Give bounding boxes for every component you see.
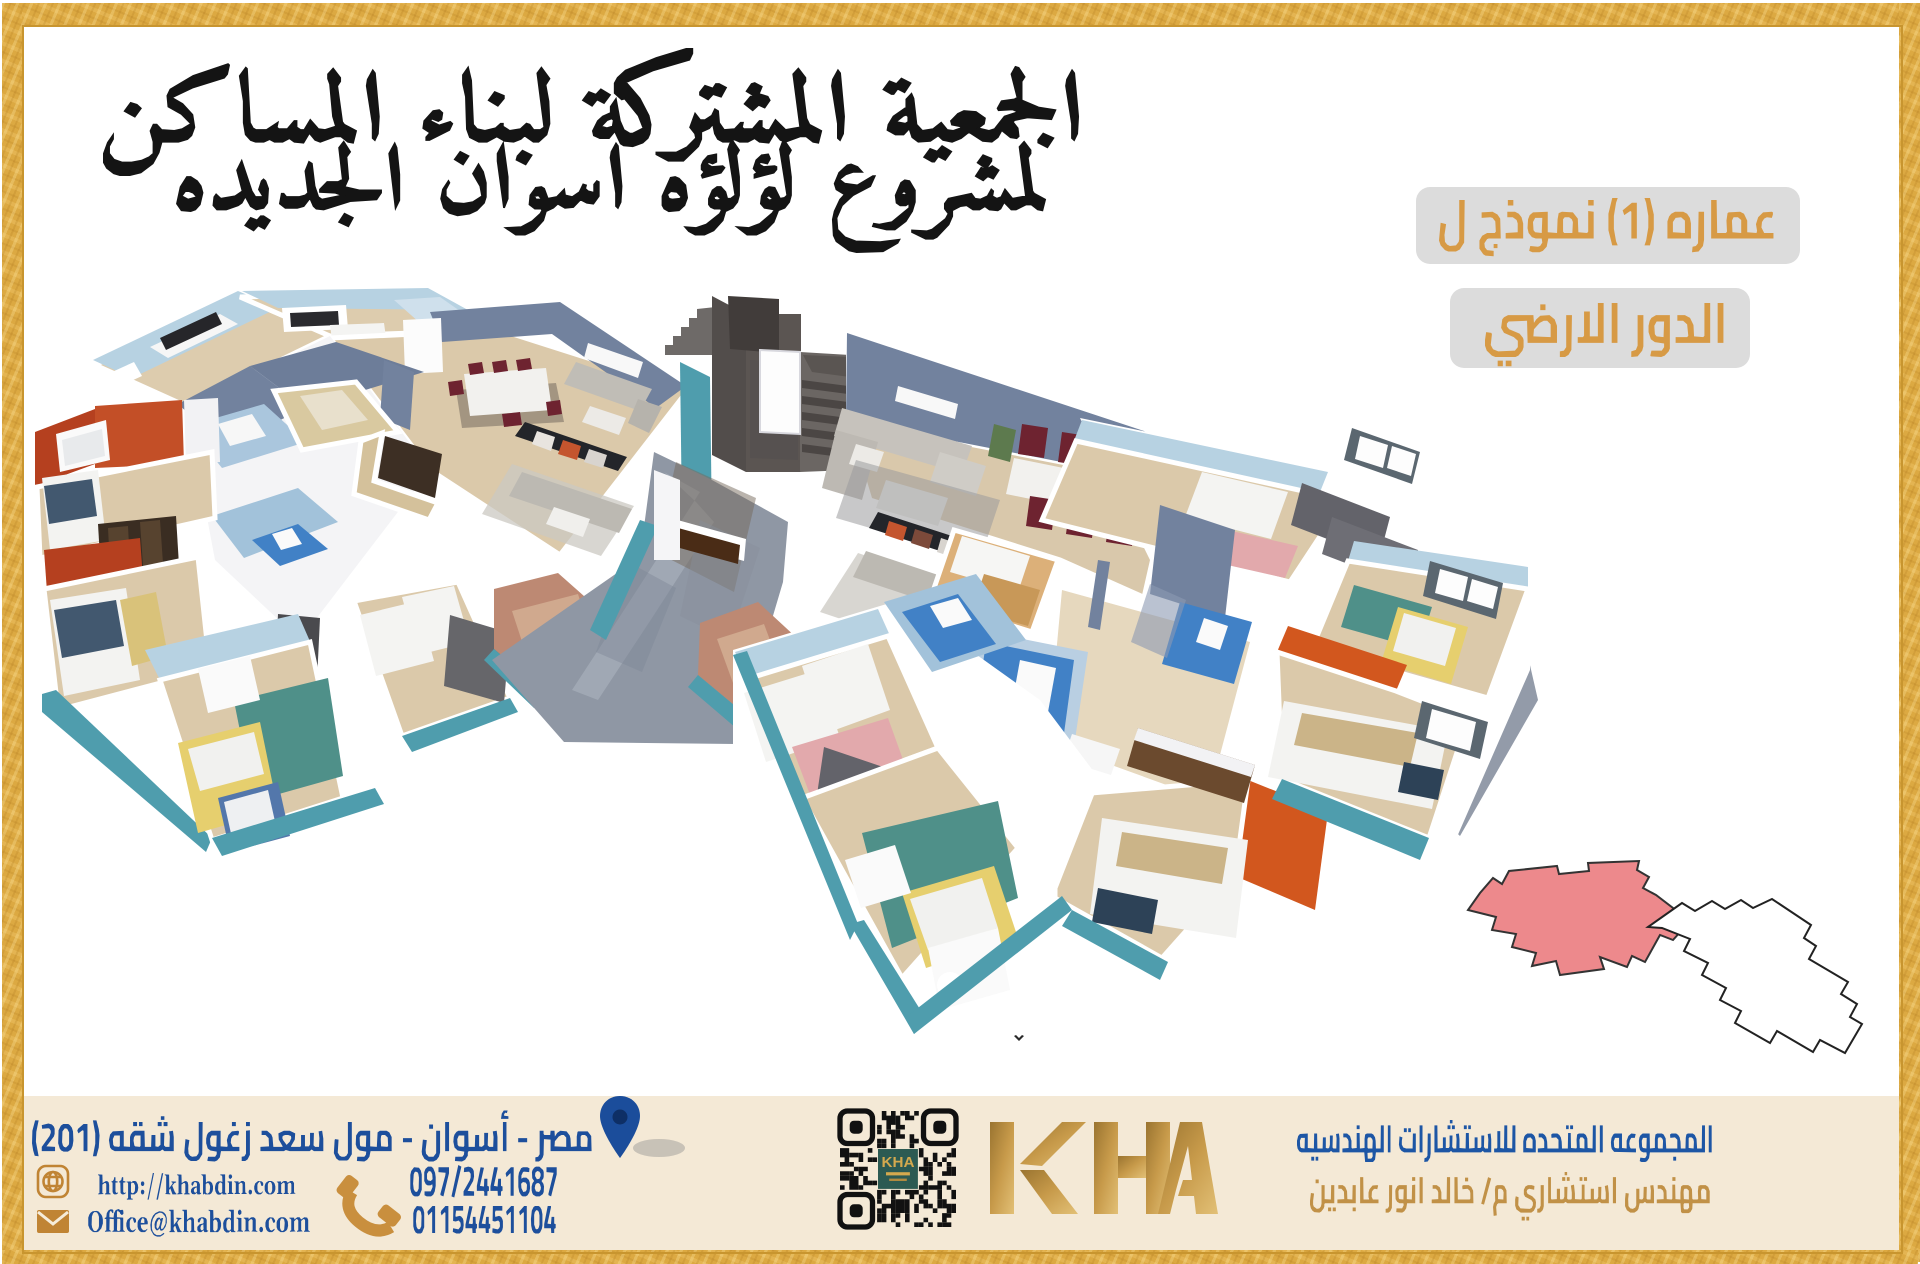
svg-text:KHA: KHA — [882, 1154, 915, 1171]
